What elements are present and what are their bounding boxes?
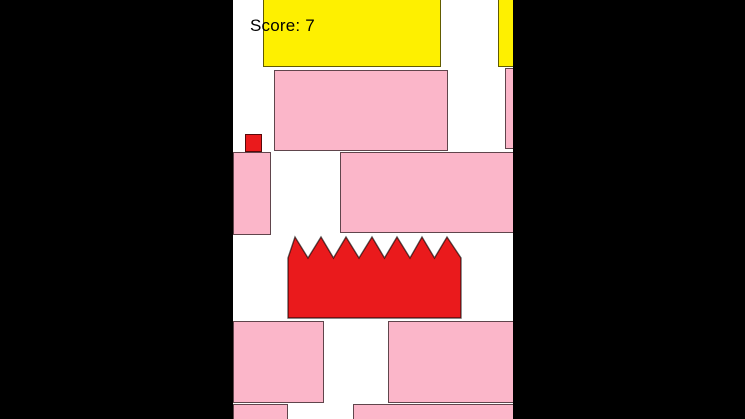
pink-strip-bottom-right [353,404,513,419]
pink-platform-lower-right [388,321,513,403]
pink-platform-upper [274,70,448,151]
game-screen: Score: 7 [0,0,745,419]
score-label: Score: 7 [250,17,315,36]
player-square [245,134,262,152]
letterbox-left [0,0,233,419]
pink-platform-mid-right [340,152,513,233]
spike-obstacle [288,237,461,318]
yellow-block-top-right [498,0,513,67]
pink-platform-lower-left [233,321,324,403]
pink-strip-bottom-left [233,404,288,419]
pink-strip-upper-right [505,68,513,149]
pink-platform-mid-left [233,152,271,235]
letterbox-right [513,0,745,419]
game-viewport[interactable]: Score: 7 [233,0,513,419]
